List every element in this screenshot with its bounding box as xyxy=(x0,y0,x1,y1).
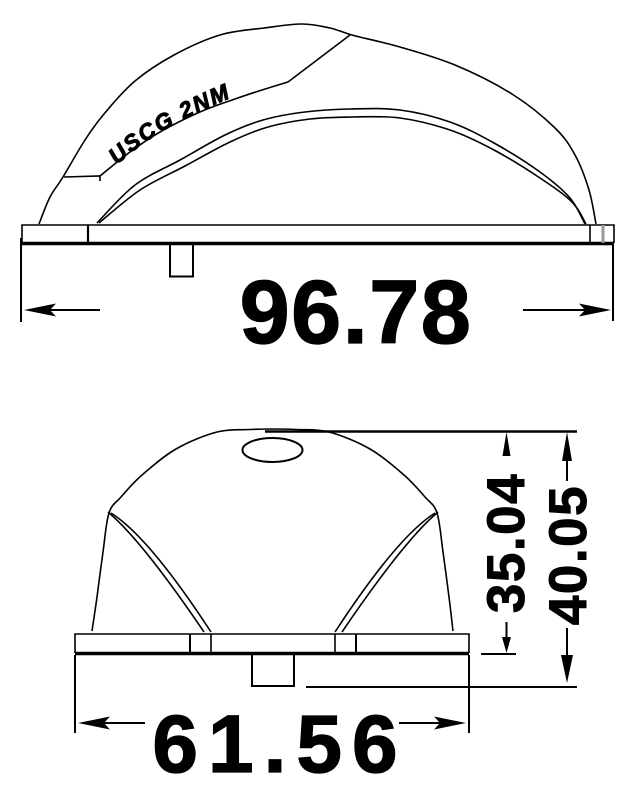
svg-text:40.05: 40.05 xyxy=(539,485,598,625)
svg-text:61.56: 61.56 xyxy=(152,699,407,790)
svg-text:96.78: 96.78 xyxy=(240,263,473,363)
svg-text:35.04: 35.04 xyxy=(477,473,536,613)
